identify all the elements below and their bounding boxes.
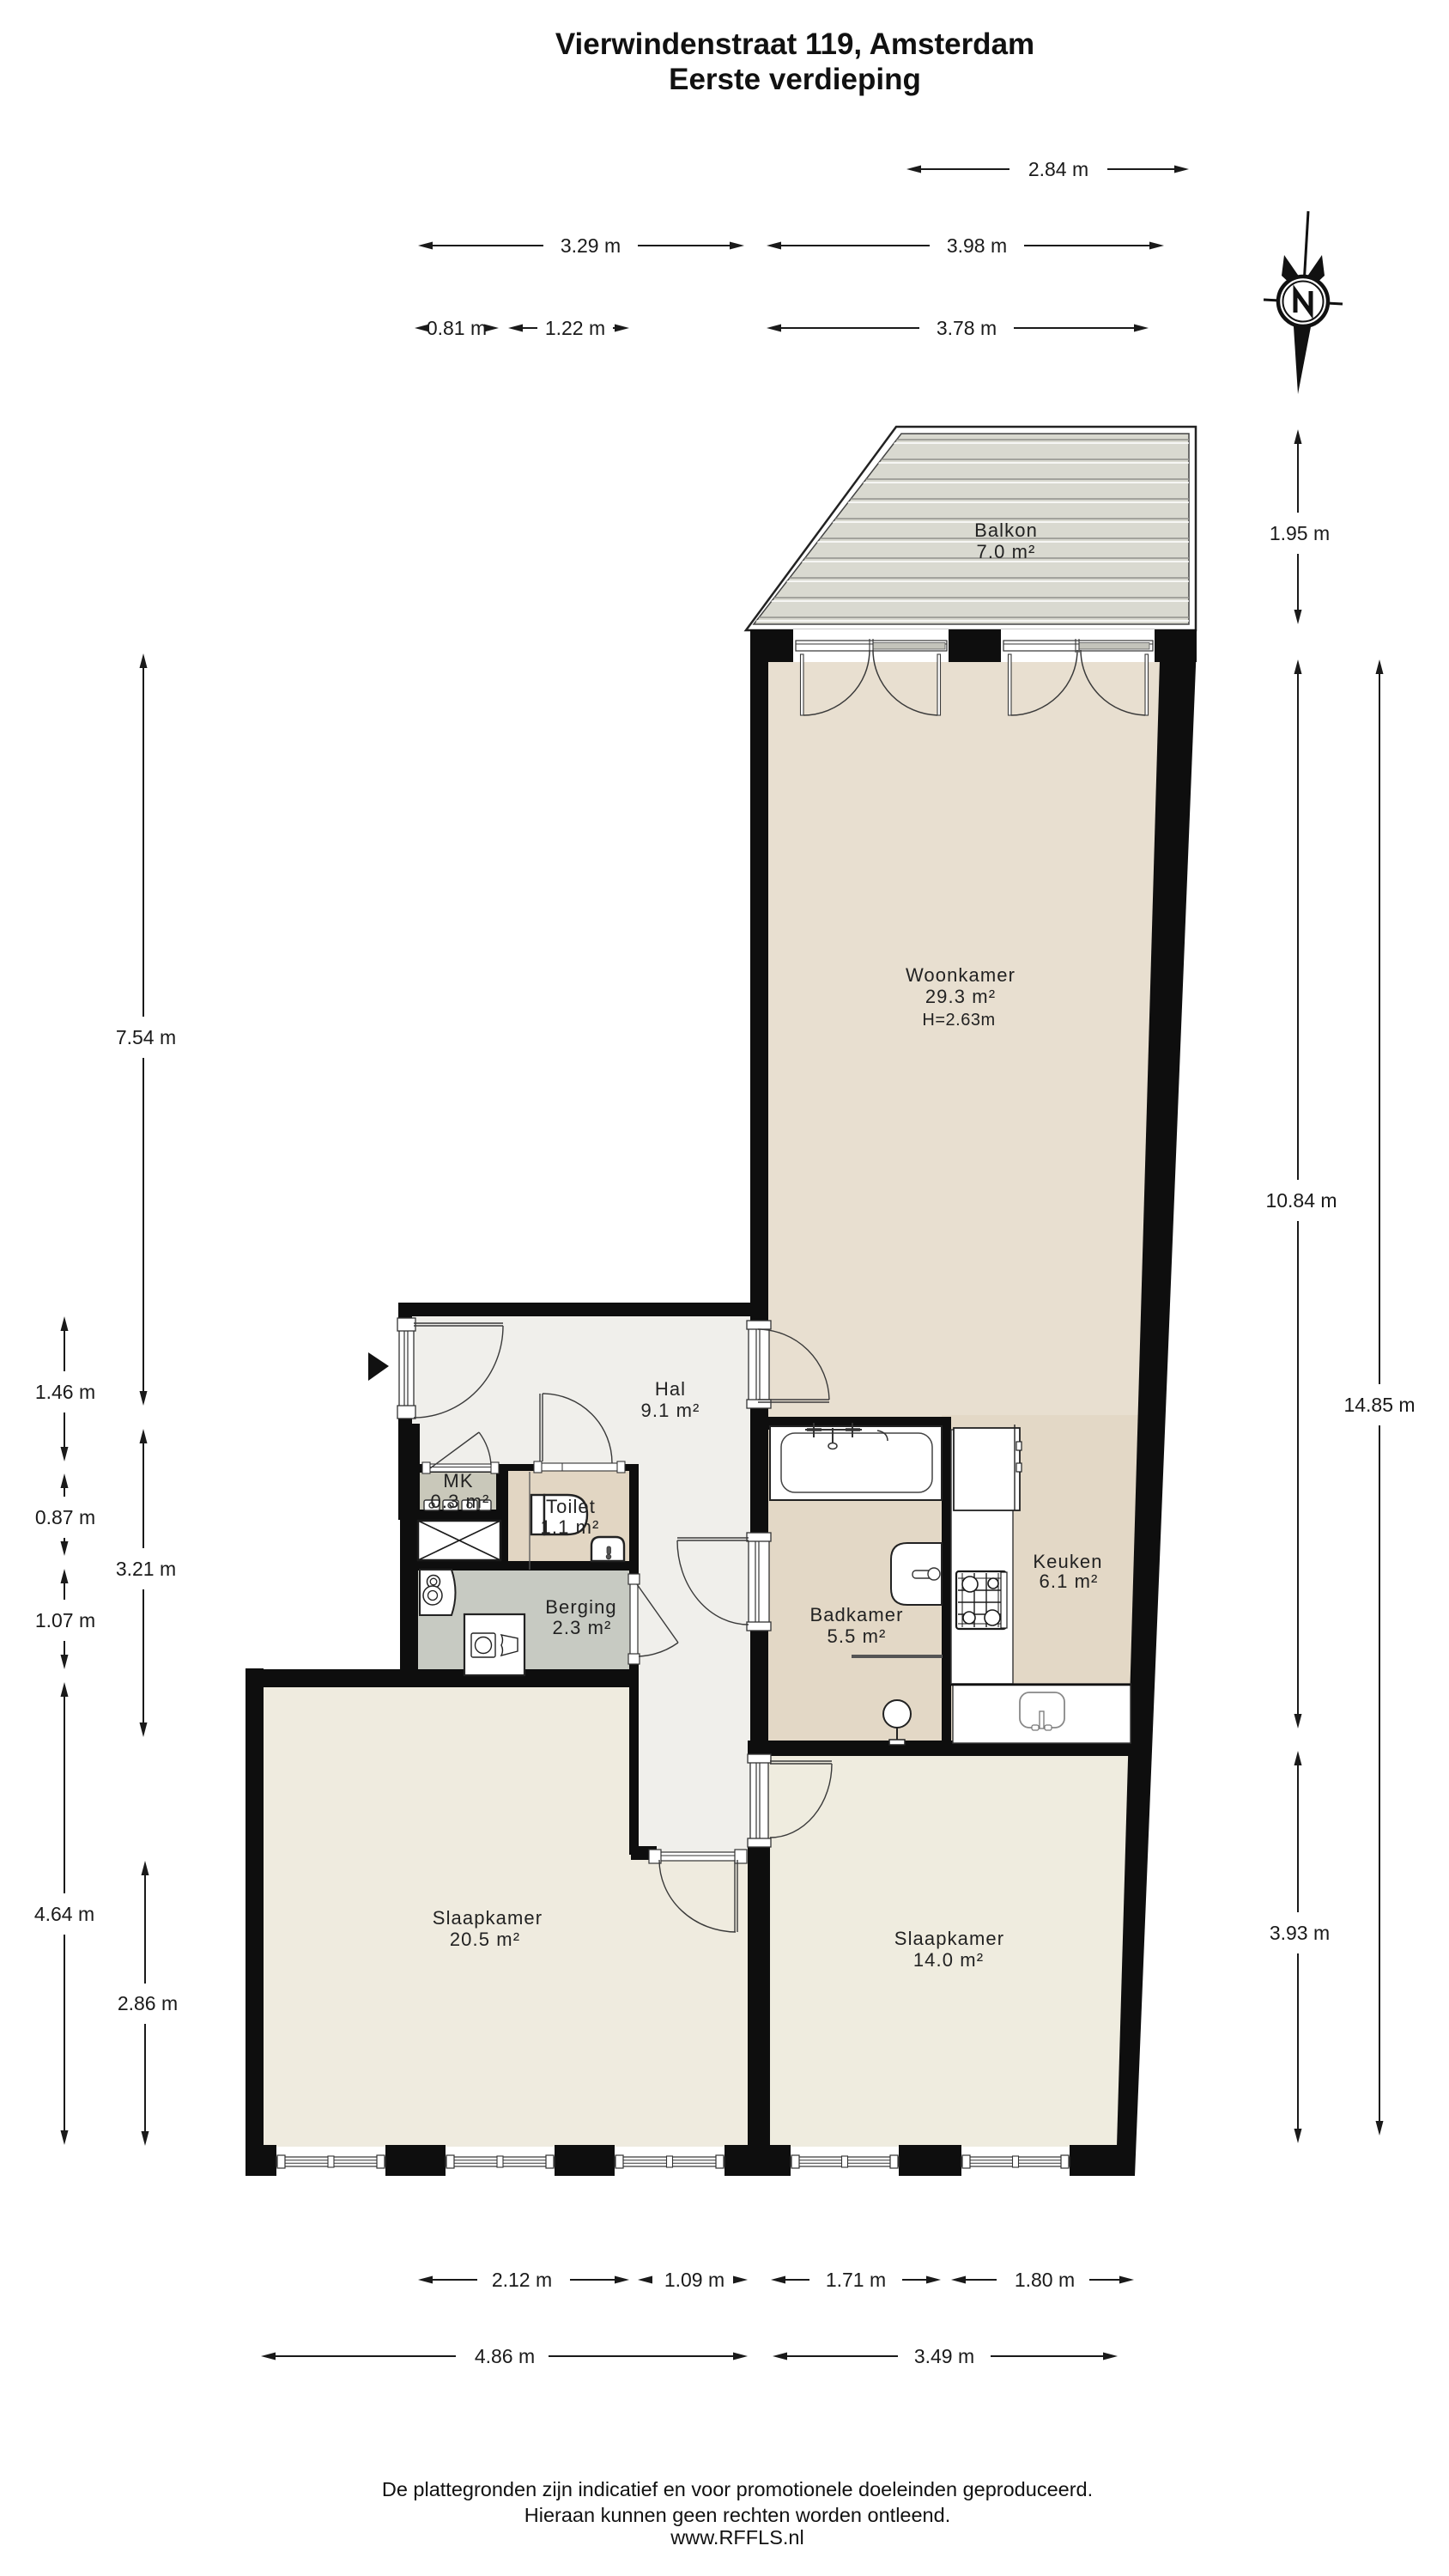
svg-text:Hieraan kunnen geen rechten wo: Hieraan kunnen geen rechten worden ontle… xyxy=(524,2504,950,2526)
svg-text:Vierwindenstraat 119, Amsterda: Vierwindenstraat 119, Amsterdam xyxy=(555,27,1034,61)
svg-text:4.64 m: 4.64 m xyxy=(34,1903,94,1925)
svg-text:MK: MK xyxy=(443,1470,473,1492)
svg-text:2.84 m: 2.84 m xyxy=(1028,158,1088,180)
svg-text:10.84 m: 10.84 m xyxy=(1265,1189,1337,1212)
svg-text:www.RFFLS.nl: www.RFFLS.nl xyxy=(670,2526,803,2549)
svg-text:Toilet: Toilet xyxy=(546,1496,596,1517)
svg-text:3.29 m: 3.29 m xyxy=(561,234,621,257)
svg-text:14.0 m²: 14.0 m² xyxy=(913,1949,984,1971)
svg-text:0.81 m: 0.81 m xyxy=(427,317,487,339)
svg-text:Balkon: Balkon xyxy=(974,519,1038,541)
svg-text:2.3 m²: 2.3 m² xyxy=(553,1617,612,1638)
svg-text:Badkamer: Badkamer xyxy=(809,1604,903,1625)
svg-text:7.0 m²: 7.0 m² xyxy=(977,541,1036,562)
svg-text:Slaapkamer: Slaapkamer xyxy=(894,1928,1004,1949)
svg-text:4.86 m: 4.86 m xyxy=(475,2345,535,2367)
svg-text:2.12 m: 2.12 m xyxy=(492,2269,552,2291)
svg-text:3.49 m: 3.49 m xyxy=(914,2345,974,2367)
svg-text:Berging: Berging xyxy=(545,1596,617,1618)
svg-text:7.54 m: 7.54 m xyxy=(116,1026,176,1048)
svg-text:0.87 m: 0.87 m xyxy=(35,1506,95,1528)
svg-text:H=2.63m: H=2.63m xyxy=(922,1011,995,1030)
svg-text:29.3 m²: 29.3 m² xyxy=(925,986,996,1007)
svg-text:3.93 m: 3.93 m xyxy=(1270,1922,1330,1944)
svg-text:3.21 m: 3.21 m xyxy=(116,1558,176,1580)
svg-text:1.1 m²: 1.1 m² xyxy=(541,1516,600,1538)
svg-text:Slaapkamer: Slaapkamer xyxy=(433,1907,543,1929)
svg-text:1.46 m: 1.46 m xyxy=(35,1381,95,1403)
svg-text:Keuken: Keuken xyxy=(1033,1551,1102,1572)
svg-text:De plattegronden zijn indicati: De plattegronden zijn indicatief en voor… xyxy=(382,2478,1093,2500)
svg-text:14.85 m: 14.85 m xyxy=(1343,1394,1415,1416)
svg-text:1.22 m: 1.22 m xyxy=(545,317,605,339)
svg-text:9.1 m²: 9.1 m² xyxy=(641,1400,700,1421)
svg-text:6.1 m²: 6.1 m² xyxy=(1040,1571,1099,1592)
svg-text:1.09 m: 1.09 m xyxy=(664,2269,724,2291)
svg-text:1.80 m: 1.80 m xyxy=(1015,2269,1075,2291)
svg-text:Hal: Hal xyxy=(655,1378,686,1400)
svg-text:1.95 m: 1.95 m xyxy=(1270,522,1330,544)
svg-text:1.71 m: 1.71 m xyxy=(826,2269,886,2291)
svg-text:20.5 m²: 20.5 m² xyxy=(450,1929,520,1950)
svg-text:1.07 m: 1.07 m xyxy=(35,1609,95,1631)
svg-text:3.78 m: 3.78 m xyxy=(937,317,997,339)
svg-text:2.86 m: 2.86 m xyxy=(118,1992,178,2014)
svg-text:Eerste verdieping: Eerste verdieping xyxy=(669,63,921,96)
svg-text:5.5 m²: 5.5 m² xyxy=(828,1625,887,1647)
svg-text:3.98 m: 3.98 m xyxy=(947,234,1007,257)
svg-text:Woonkamer: Woonkamer xyxy=(906,964,1016,986)
svg-text:0.3 m²: 0.3 m² xyxy=(431,1491,490,1512)
